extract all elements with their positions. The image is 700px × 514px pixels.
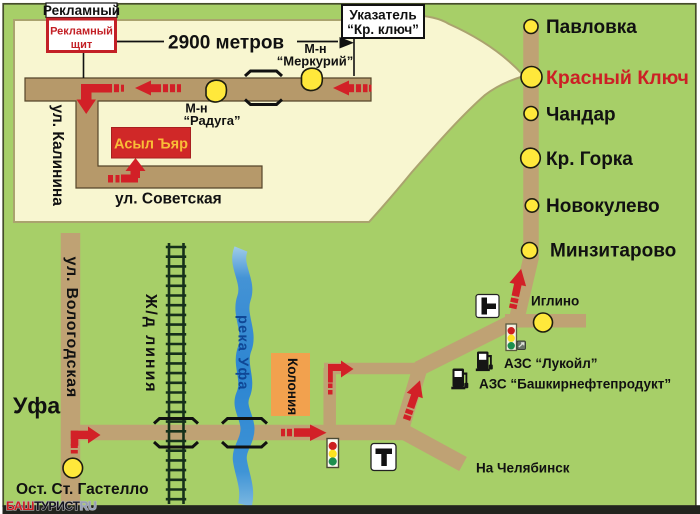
svg-text:Иглино: Иглино	[531, 294, 579, 309]
svg-text:Кр. Горка: Кр. Горка	[546, 149, 633, 170]
svg-text:Павловка: Павловка	[546, 17, 637, 38]
svg-text:На Челябинск: На Челябинск	[476, 461, 570, 476]
svg-text:Рекламный: Рекламный	[50, 26, 113, 38]
svg-text:ул. Вологодская: ул. Вологодская	[63, 257, 80, 399]
svg-text:ул. Калинина: ул. Калинина	[49, 105, 66, 207]
svg-text:Минзитарово: Минзитарово	[550, 241, 676, 262]
svg-text:Чандар: Чандар	[546, 105, 616, 126]
svg-text:Асыл Ъяр: Асыл Ъяр	[114, 137, 188, 153]
svg-text:щит: щит	[71, 39, 93, 51]
svg-text:“Кр. ключ”: “Кр. ключ”	[347, 22, 419, 37]
svg-text:АЗС “Лукойл”: АЗС “Лукойл”	[504, 356, 598, 371]
svg-text:Красный Ключ: Красный Ключ	[546, 67, 689, 89]
svg-text:Ж/д линия: Ж/д линия	[142, 293, 159, 393]
svg-text:Рекламный: Рекламный	[43, 3, 120, 18]
svg-text:Уфа: Уфа	[13, 393, 60, 419]
svg-text:Новокулево: Новокулево	[546, 196, 660, 217]
svg-text:река Уфа: река Уфа	[235, 315, 251, 391]
svg-text:АЗС “Башкирнефтепродукт”: АЗС “Башкирнефтепродукт”	[479, 377, 671, 392]
svg-text:ул. Советская: ул. Советская	[115, 191, 222, 208]
svg-text:Ост. Ст. Гастелло: Ост. Ст. Гастелло	[16, 481, 149, 498]
svg-text:БАШТУРИСТRU: БАШТУРИСТRU	[6, 499, 97, 513]
svg-text:Колония: Колония	[285, 358, 300, 415]
svg-text:2900 метров: 2900 метров	[168, 33, 284, 54]
svg-text:“Радуга”: “Радуга”	[183, 113, 240, 128]
svg-text:Указатель: Указатель	[349, 8, 416, 23]
svg-text:“Меркурий”: “Меркурий”	[277, 54, 354, 69]
